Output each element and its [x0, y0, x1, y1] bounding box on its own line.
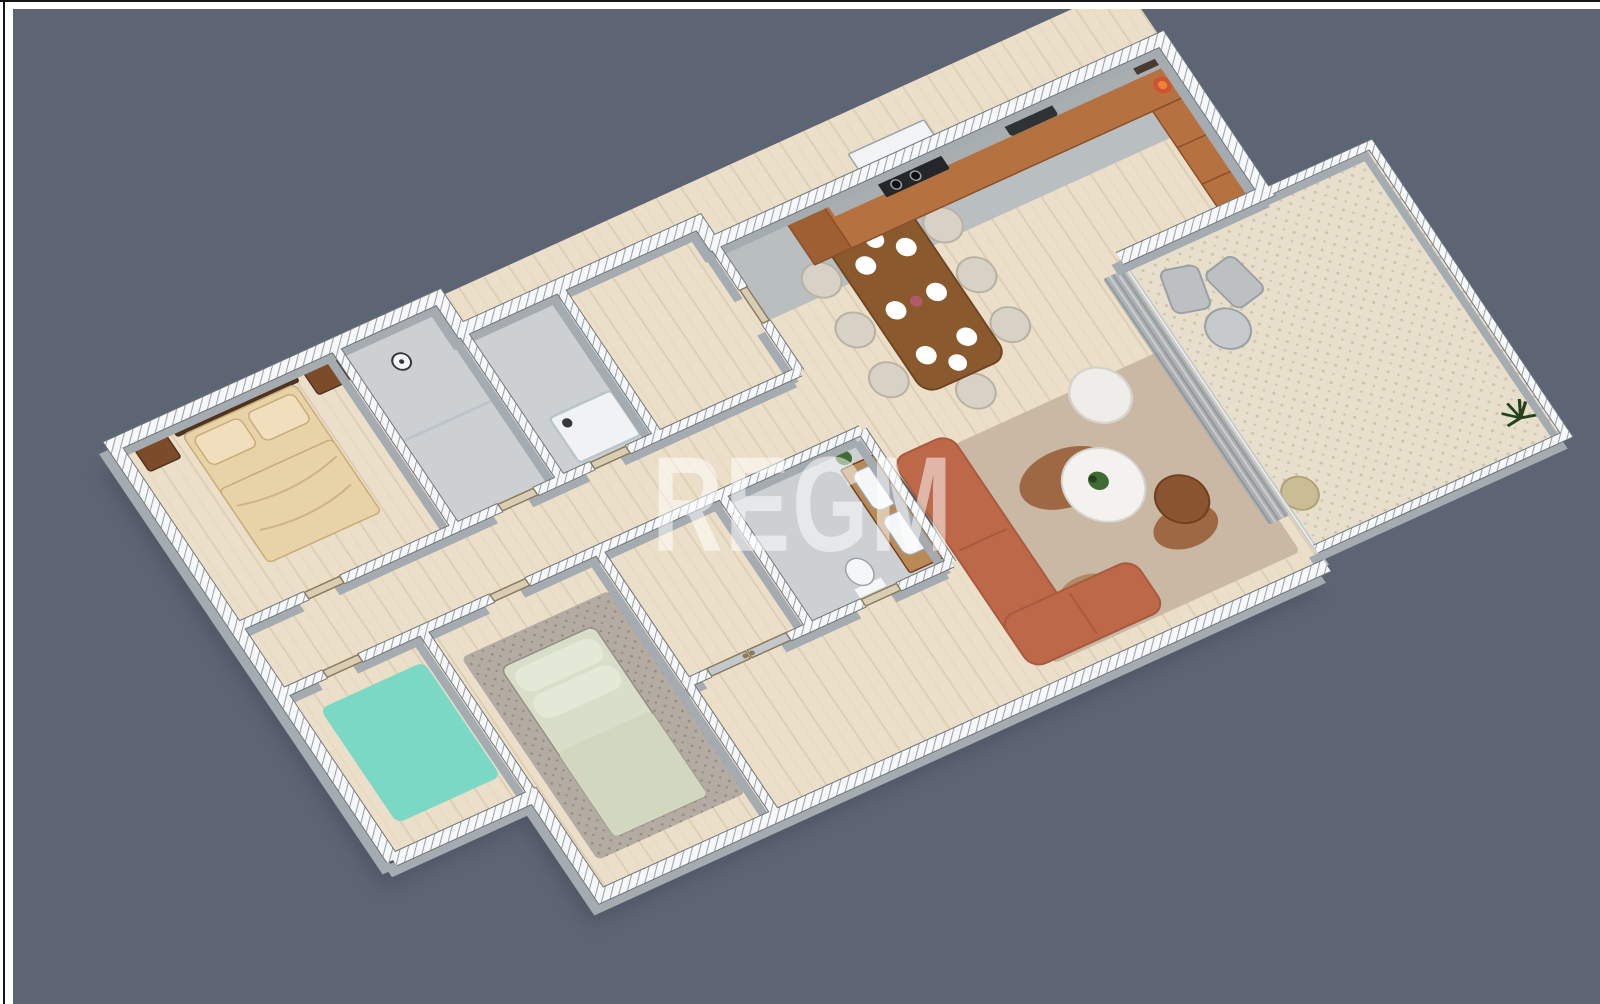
page-frame-top [0, 0, 1600, 2]
floorplan-render [13, 9, 1600, 1004]
floorplan-canvas: REGM [13, 9, 1600, 1004]
page-frame-left [3, 0, 5, 1004]
